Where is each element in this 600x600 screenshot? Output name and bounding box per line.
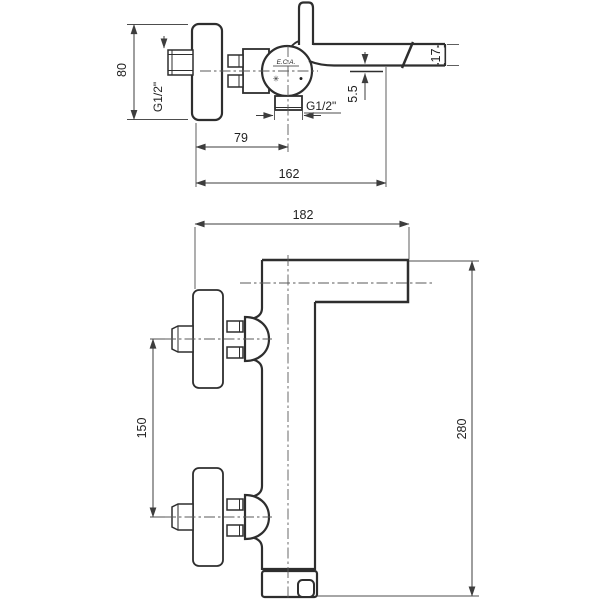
dim-text-80: 80 [115, 63, 129, 77]
shower-outlet-side [275, 96, 302, 110]
dim-underside-offset-5-5: 5.5 [346, 52, 365, 103]
faucet-dimension-drawing: E.C.A. ✳ ● 80 G1/2" 5.5 [0, 0, 600, 600]
dim-text-17: 17 [429, 49, 443, 63]
hose-outlet-detail [298, 580, 314, 597]
spout-side [309, 42, 445, 72]
side-view: E.C.A. ✳ ● 80 G1/2" 5.5 [115, 3, 459, 188]
base-cap-front [262, 569, 317, 597]
mount-assembly-bottom [150, 468, 272, 566]
dim-text-150: 150 [135, 418, 149, 439]
dim-text-79: 79 [234, 131, 248, 145]
mount-assembly-top [150, 290, 272, 388]
dim-text-182: 182 [293, 208, 314, 222]
wall-plate-side [192, 24, 222, 120]
dim-text-280: 280 [455, 419, 469, 440]
dim-text-162: 162 [279, 167, 300, 181]
front-view: 182 150 280 [135, 208, 479, 600]
dim-overall-height-280: 280 [317, 261, 479, 596]
dim-text-outlet-thread: G1/2" [306, 99, 336, 113]
dim-text-5-5: 5.5 [346, 85, 360, 102]
dim-spout-end-height-17: 17 [429, 45, 459, 66]
dim-spout-reach-182: 182 [195, 208, 409, 289]
dim-inlet-spacing-150: 150 [135, 339, 153, 517]
brand-logo-text: E.C.A. [277, 59, 296, 66]
spout-front [262, 260, 408, 302]
brand-mark: E.C.A. [273, 59, 299, 66]
dim-wall-to-outlet-79: 79 [196, 123, 288, 187]
cold-indicator-icon: ✳ [273, 75, 280, 84]
technical-drawing-page: E.C.A. ✳ ● 80 G1/2" 5.5 [0, 0, 600, 600]
spout-break-mark [402, 42, 413, 68]
dim-inlet-thread: G1/2" [151, 36, 165, 112]
hot-indicator-icon: ● [299, 76, 303, 83]
dim-text-inlet-thread: G1/2" [151, 82, 165, 112]
inlet-hex-nut-side [168, 50, 193, 75]
lever-handle-side [291, 3, 313, 48]
